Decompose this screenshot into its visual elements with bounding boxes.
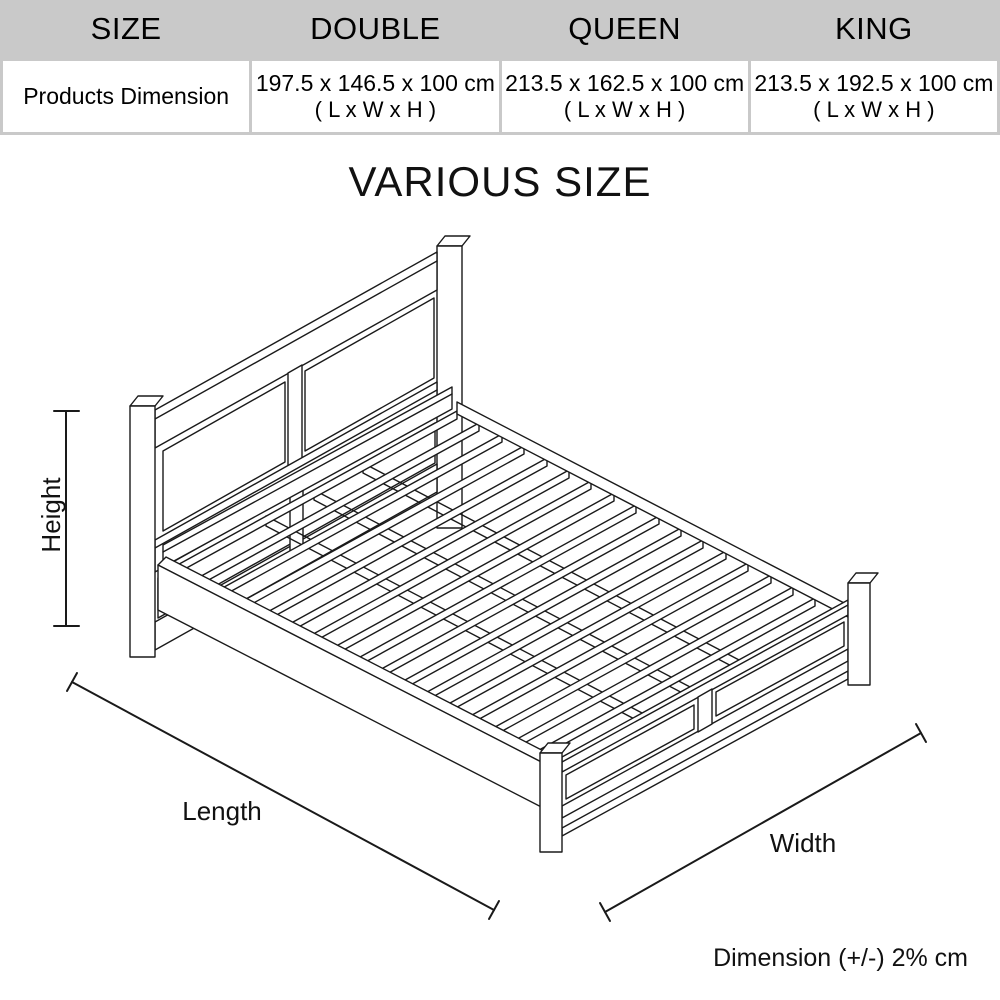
tolerance-note: Dimension (+/-) 2% cm: [713, 944, 968, 972]
product-dimension-sheet: { "title": "VARIOUS SIZE", "table": { "h…: [0, 0, 1000, 1000]
height-label: Height: [36, 477, 66, 553]
bed-frame-illustration: Height Length Width Dimension (+/-) 2% c…: [0, 0, 1000, 1000]
length-label: Length: [182, 796, 262, 826]
slats: [172, 411, 815, 763]
back-side-rail: [457, 402, 848, 617]
front-side-rail: [158, 557, 561, 813]
width-label: Width: [770, 828, 836, 858]
